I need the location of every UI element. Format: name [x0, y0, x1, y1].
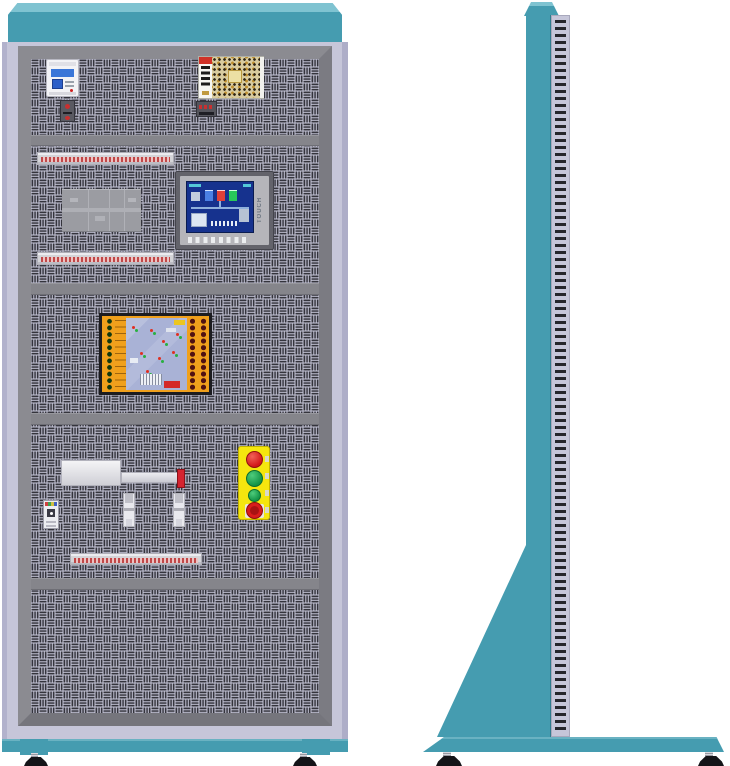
red-button — [246, 451, 263, 468]
plc-white-block-2 — [130, 358, 138, 363]
side-mounting-rail — [551, 15, 570, 737]
plc-ladder-graphic — [140, 374, 162, 385]
psu-terminal-column — [201, 66, 210, 88]
sensor-1-stem — [126, 519, 132, 526]
breaker-top-strip — [49, 62, 76, 66]
station-tab-1 — [265, 456, 269, 462]
plc-input-terminals — [104, 318, 115, 390]
actuator-rod — [121, 472, 178, 483]
proximity-sensor-2 — [173, 493, 185, 527]
actuator-body — [61, 460, 121, 486]
hmi-button-row-graphic — [211, 221, 237, 226]
psu-transformer — [228, 70, 242, 83]
plc-label-column — [115, 320, 126, 388]
terminal-strip-1-row — [41, 157, 170, 162]
emergency-stop-button — [250, 506, 259, 515]
terminal-red-dot-2 — [65, 116, 70, 120]
hmi-screen-logo — [189, 184, 201, 187]
plc-red-label — [164, 381, 180, 388]
side-cabinet-column — [526, 15, 551, 737]
front-leveling-foot-right — [293, 757, 317, 766]
psu-logo-red — [199, 57, 212, 64]
breaker-marking-2 — [65, 85, 74, 87]
side-support-gusset — [437, 545, 526, 737]
psu-gold-pad — [202, 91, 209, 95]
side-leveling-foot-left — [436, 756, 462, 766]
section-divider-1 — [31, 135, 319, 146]
hmi-vessel — [239, 209, 249, 222]
psu-terminal-dots — [199, 105, 214, 109]
green-button — [246, 470, 263, 487]
terminal-slot — [63, 112, 72, 114]
breaker-terminal-block — [60, 100, 75, 122]
terminal-strip-1 — [37, 152, 174, 165]
side-top-cap — [524, 2, 559, 16]
sensor-2-band — [174, 508, 184, 511]
plc-green-leds — [135, 329, 138, 332]
sensor-2-cap — [175, 494, 183, 503]
station-tab-3 — [265, 490, 269, 496]
relay-tab-1 — [70, 198, 78, 202]
pcb-module — [43, 500, 59, 529]
hmi-gray-unit — [191, 192, 200, 201]
breaker-marking-1 — [65, 81, 74, 83]
hmi-screen — [186, 181, 254, 233]
hmi-face: TOUCH — [180, 176, 269, 245]
pcb-top-components — [45, 502, 57, 506]
plc-trainer-module — [99, 313, 212, 395]
sensor-1-cap — [125, 494, 133, 503]
section-divider-2 — [31, 283, 319, 295]
terminal-strip-2 — [37, 252, 174, 265]
relay-tab-3 — [128, 198, 136, 202]
side-rail-slots — [555, 20, 566, 734]
station-tab-2 — [265, 473, 269, 479]
hmi-touch-label: TOUCH — [257, 188, 268, 232]
front-base-strip — [2, 739, 348, 752]
breaker-blue-bar — [51, 69, 74, 77]
hmi-tank-blue — [205, 190, 213, 201]
plc-yellow-chip — [174, 320, 185, 325]
plc-white-block-1 — [166, 328, 176, 332]
actuator-red-tip — [177, 469, 185, 488]
pcb-chip-dot — [50, 512, 53, 515]
plc-simulation-board — [126, 318, 187, 390]
circuit-breaker — [46, 59, 79, 97]
psu-edge-strip — [260, 57, 264, 98]
side-base-plate — [423, 737, 724, 752]
front-top-cap — [8, 3, 342, 42]
green-button-small — [248, 489, 261, 502]
power-supply — [198, 56, 264, 99]
proximity-sensor-1 — [123, 493, 135, 527]
sensor-2-stem — [176, 519, 182, 526]
terminal-strip-3-row — [74, 558, 198, 563]
relay-block-cluster — [62, 189, 141, 232]
pcb-stripe-1 — [46, 521, 56, 523]
hmi-screen-status — [243, 184, 251, 187]
sensor-1-band — [124, 508, 134, 511]
hmi-function-keys — [188, 237, 250, 243]
psu-circuit-board — [212, 57, 260, 98]
relay-tab-2 — [95, 216, 105, 221]
cabinet-technical-illustration: TOUCH — [0, 0, 730, 766]
hmi-tank-green — [229, 190, 237, 201]
terminal-red-dot — [65, 104, 70, 109]
relay-mid-band — [62, 208, 141, 212]
psu-terminal-base — [199, 112, 214, 115]
terminal-strip-3 — [70, 553, 202, 565]
station-tab-4 — [265, 507, 269, 513]
push-button-station — [238, 446, 270, 520]
section-divider-4 — [31, 578, 319, 590]
pcb-chip — [47, 509, 55, 517]
plc-output-terminals — [187, 318, 209, 390]
breaker-bottom-strip — [49, 92, 76, 95]
side-leveling-foot-right — [698, 756, 724, 766]
hmi-tank-red — [217, 190, 225, 201]
breaker-toggle — [52, 79, 63, 89]
psu-label-strip — [199, 57, 212, 98]
hmi-data-table — [191, 213, 207, 227]
emergency-stop-ring — [246, 502, 263, 519]
psu-terminal-block — [196, 101, 217, 117]
front-leveling-foot-left — [24, 757, 48, 766]
section-divider-3 — [31, 413, 319, 425]
terminal-strip-2-row — [41, 257, 170, 262]
hmi-touch-panel: TOUCH — [175, 171, 274, 250]
pcb-stripe-2 — [46, 525, 56, 527]
